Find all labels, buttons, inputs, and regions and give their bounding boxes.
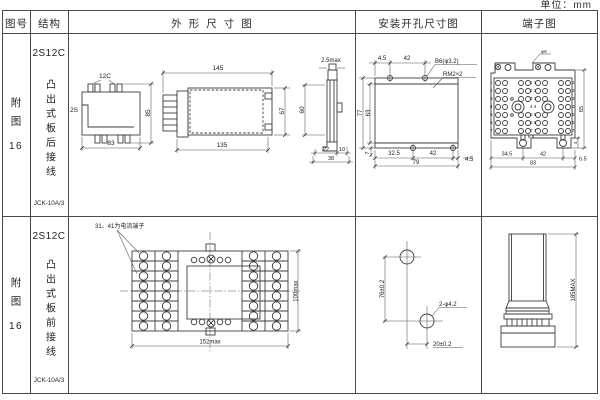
mounting-drawing-row1: 4.5 42 B6(φ3.2) RM2×2 77 63 7 <box>355 33 481 216</box>
structure-cell-row1: 2S12C 凸出式板后接线 JCK-10A/3 <box>30 33 68 216</box>
dim-label-12c: 12C <box>99 73 111 80</box>
header-structure: 结构 <box>30 14 68 33</box>
dim-label-t42: 42 <box>540 152 546 158</box>
dim-label-20: 20±0.2 <box>433 342 452 348</box>
figure-label: 附图 <box>9 97 24 134</box>
outline-svg-row2: 31、41为电流端子 152max 100max <box>68 216 355 393</box>
figure-number: 16 <box>9 141 23 152</box>
mounting-drawing-row2: 76±0.2 20±0.2 2-φ4.2 <box>355 216 481 393</box>
terminal-numbers-bottom: 8 8 <box>528 133 534 141</box>
terminal-numbers-right: 1 2 3 4 5 6 7 <box>572 79 575 135</box>
header-terminal: 端子图 <box>481 14 597 33</box>
current-terminal-note: 31、41为电流端子 <box>95 222 144 230</box>
type-code: JCK-10A/3 <box>34 200 64 207</box>
header-figure: 图号 <box>2 14 30 33</box>
structure-desc: 凸出式板后接线 <box>42 79 57 181</box>
dim-label-top-45: 4.5 <box>378 56 387 62</box>
outline-drawing-row1: 12C 2S 85 83 145 <box>68 33 355 216</box>
model-label: 2S12C <box>32 48 65 59</box>
dim-label-67: 67 <box>279 107 286 115</box>
dim-label-83: 83 <box>107 140 115 147</box>
dim-label-85: 85 <box>145 109 152 117</box>
figure-cell-row1: 附图 16 <box>2 33 30 216</box>
dim-label-bot-45: 4.5 <box>465 157 474 163</box>
dim-label-325: 32.5 <box>388 151 400 157</box>
dim-label-bot-42: 42 <box>430 151 437 157</box>
terminal-svg-row1: φ6 85 <box>481 33 597 216</box>
dim-label-152max: 152max <box>199 340 220 346</box>
dim-label-25max: 2.5max <box>321 58 341 64</box>
figure-number: 16 <box>9 321 23 332</box>
dim-label-7: 7 <box>365 151 371 154</box>
dim-label-t85: 85 <box>579 106 585 112</box>
figure-label: 附图 <box>9 277 24 314</box>
terminal-drawing-row1: φ6 85 <box>481 33 597 216</box>
table-border-right <box>597 10 598 394</box>
table-border-bottom <box>2 393 598 394</box>
note-hole-42: 2-φ4.2 <box>439 302 457 308</box>
structure-desc: 凸出式板前接线 <box>42 259 57 361</box>
structure-cell-row2: 2S12C 凸出式板前接线 JCK-10A/3 <box>30 216 68 393</box>
model-label: 2S12C <box>32 231 65 242</box>
dim-label-t83: 83 <box>530 161 536 167</box>
mounting-svg-row1: 4.5 42 B6(φ3.2) RM2×2 77 63 7 <box>355 33 481 216</box>
dim-label-t4: 4 <box>573 141 579 144</box>
note-thread-rm2: RM2×2 <box>443 72 463 78</box>
note-hole-b6: B6(φ3.2) <box>435 59 459 65</box>
terminal-drawing-row2: 185MAX <box>481 216 597 393</box>
table-border-top <box>2 10 598 11</box>
dim-label-77: 77 <box>358 109 364 116</box>
outline-drawing-row2: 31、41为电流端子 152max 100max <box>68 216 355 393</box>
terminal-numbers-left: 1 2 3 4 5 6 7 <box>490 79 493 135</box>
outline-svg-row1: 12C 2S 85 83 145 <box>68 33 355 216</box>
header-outline: 外形尺寸图 <box>68 14 355 33</box>
dim-label-2s: 2S <box>70 107 79 114</box>
dim-label-22: 22 <box>323 147 329 153</box>
dim-label-65: 6.5 <box>579 157 587 163</box>
dim-label-10: 10 <box>339 147 345 153</box>
dim-label-63: 63 <box>366 109 372 116</box>
dim-label-top-42: 42 <box>404 56 411 62</box>
dim-label-79: 79 <box>413 160 420 166</box>
header-mounting: 安装开孔尺寸图 <box>355 14 481 33</box>
dim-label-60: 60 <box>299 106 306 114</box>
terminal-numbers-center: 1 1 2 2 3 3 4 4 5 5 6 6 7 7 <box>530 79 536 135</box>
dim-label-38: 38 <box>328 156 334 162</box>
terminal-svg-row2: 185MAX <box>481 216 597 393</box>
dim-label-145: 145 <box>213 65 224 72</box>
dim-label-76: 76±0.2 <box>380 279 386 298</box>
dim-label-135: 135 <box>217 142 228 149</box>
dim-label-100max: 100max <box>294 280 300 301</box>
mounting-svg-row2: 76±0.2 20±0.2 2-φ4.2 <box>355 216 481 393</box>
drawing-sheet: 单位：mm 图号 结构 外形尺寸图 安装开孔尺寸图 端子图 附图 16 2S12… <box>0 0 600 400</box>
figure-cell-row2: 附图 16 <box>2 216 30 393</box>
dim-label-185max: 185MAX <box>571 278 577 301</box>
type-code: JCK-10A/3 <box>34 377 64 384</box>
dim-label-345: 34.5 <box>502 152 513 158</box>
